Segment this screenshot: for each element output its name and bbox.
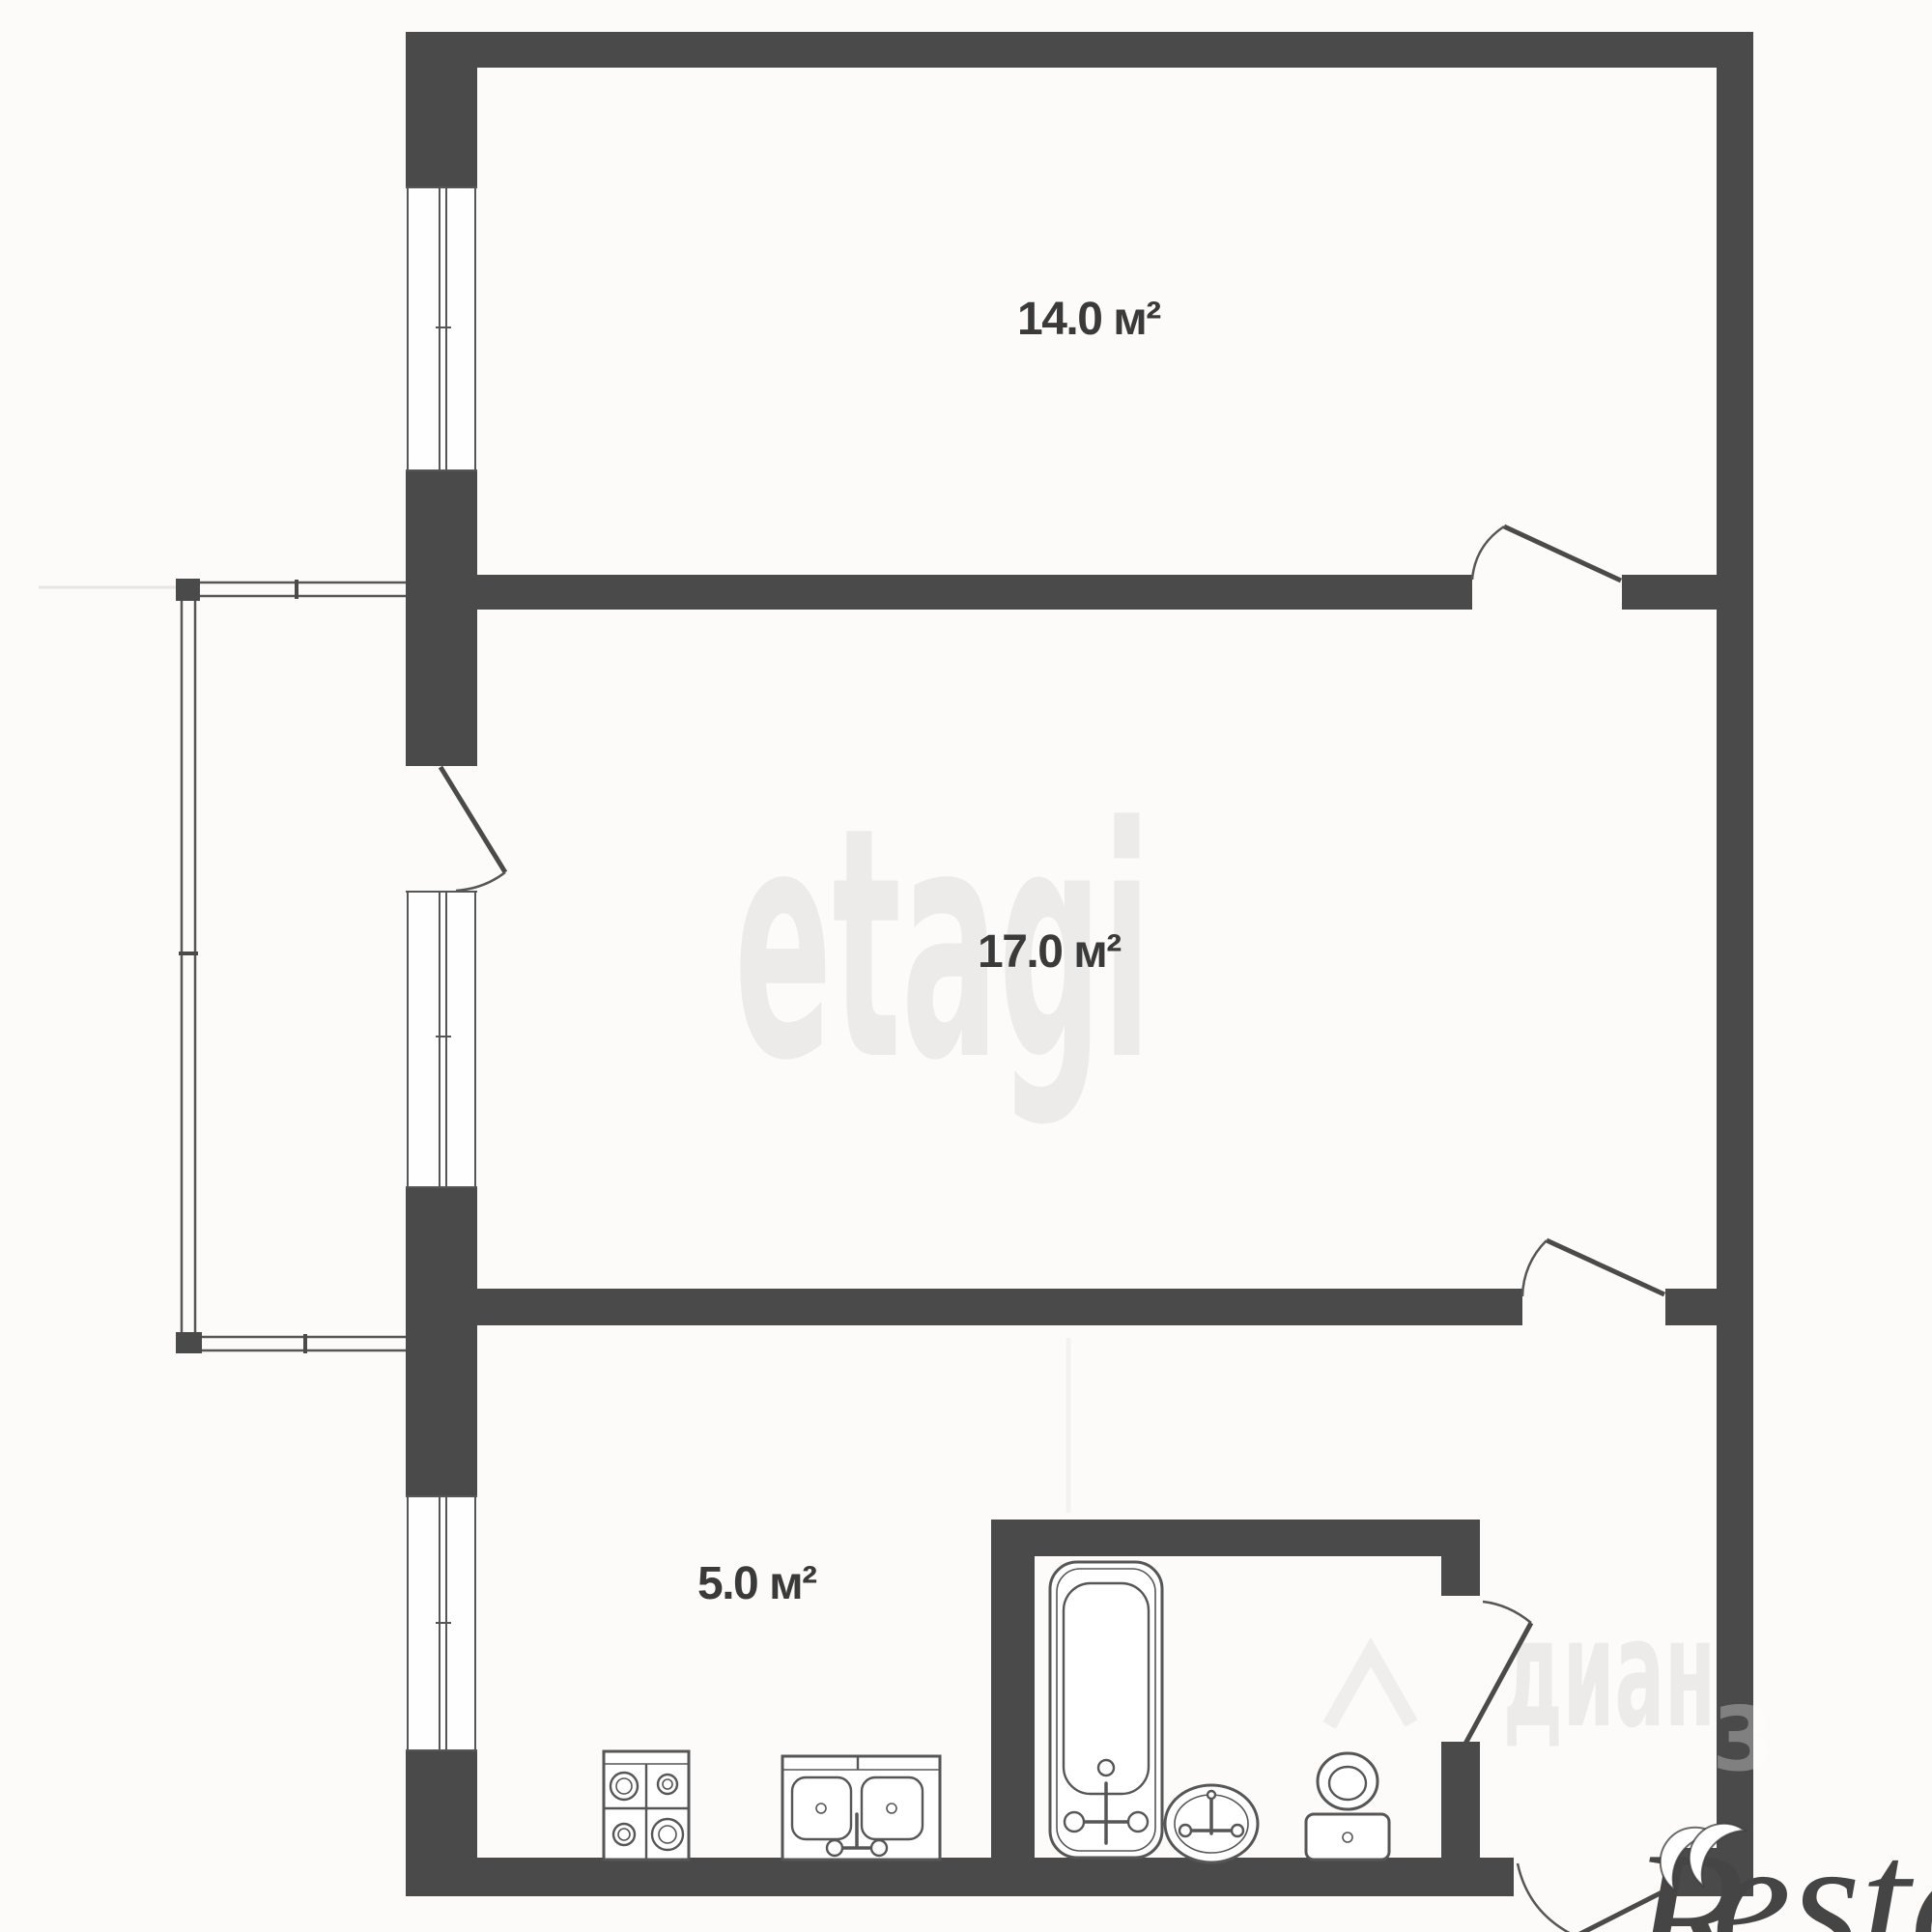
restate-watermark: R estate <box>1629 1803 1932 1932</box>
door-leaf <box>1504 526 1621 581</box>
wall-room17-kitchen <box>477 1289 1522 1325</box>
door-swing-arc <box>1522 1240 1547 1296</box>
door-swing-arc <box>1518 1863 1594 1932</box>
window-kitchen <box>406 1495 477 1751</box>
door-swing-arc <box>456 872 505 891</box>
bathtub-icon <box>1050 1562 1162 1858</box>
door-room14 <box>1472 526 1621 581</box>
kitchen-sink-icon <box>782 1756 940 1860</box>
cian-watermark-caret-icon <box>1329 1652 1411 1725</box>
door-leaf <box>440 767 505 872</box>
door-balcony <box>440 767 505 891</box>
door-swing-arc <box>1472 526 1504 580</box>
door-room17 <box>1522 1240 1664 1296</box>
bath-sink-icon <box>1165 1785 1258 1862</box>
balcony <box>176 579 406 1353</box>
balcony-corner-post <box>176 579 200 601</box>
stove-icon <box>604 1751 689 1860</box>
door-leaf <box>1547 1240 1664 1294</box>
toilet-icon <box>1306 1753 1389 1860</box>
wall-left-segment <box>406 32 477 186</box>
restate-watermark-text: estate <box>1712 1803 1932 1932</box>
window-room14 <box>406 186 477 471</box>
floor-plan-drawing: etagi диан <box>0 0 1932 1932</box>
wall-room17-kitchen-stub <box>1665 1289 1717 1325</box>
bathroom-wall-top <box>991 1520 1480 1556</box>
room-label-17: 17.0 м² <box>978 929 1121 976</box>
bathroom-wall-right-upper <box>1441 1556 1480 1596</box>
window-room17 <box>406 891 477 1188</box>
bathroom-wall-right-lower <box>1441 1742 1480 1858</box>
cian-watermark-text: диан <box>1503 1585 1716 1761</box>
cian-watermark-digit: 3 <box>1712 1688 1774 1791</box>
wall-bottom <box>406 1858 1514 1896</box>
balcony-corner-post <box>176 1332 202 1353</box>
room-label-14: 14.0 м² <box>1017 297 1160 343</box>
wall-top <box>406 32 1753 68</box>
wall-right <box>1717 32 1753 1896</box>
wall-left-segment <box>406 1751 477 1896</box>
bathroom-wall-left <box>991 1556 1035 1896</box>
wall-left-segment <box>406 1188 477 1495</box>
wall-room14-room17-stub <box>1622 575 1717 610</box>
room-label-kitchen: 5.0 м² <box>697 1561 816 1607</box>
floor-plan-canvas: etagi диан <box>0 0 1932 1932</box>
wall-left-segment <box>406 471 477 766</box>
wall-room14-room17 <box>477 575 1472 610</box>
